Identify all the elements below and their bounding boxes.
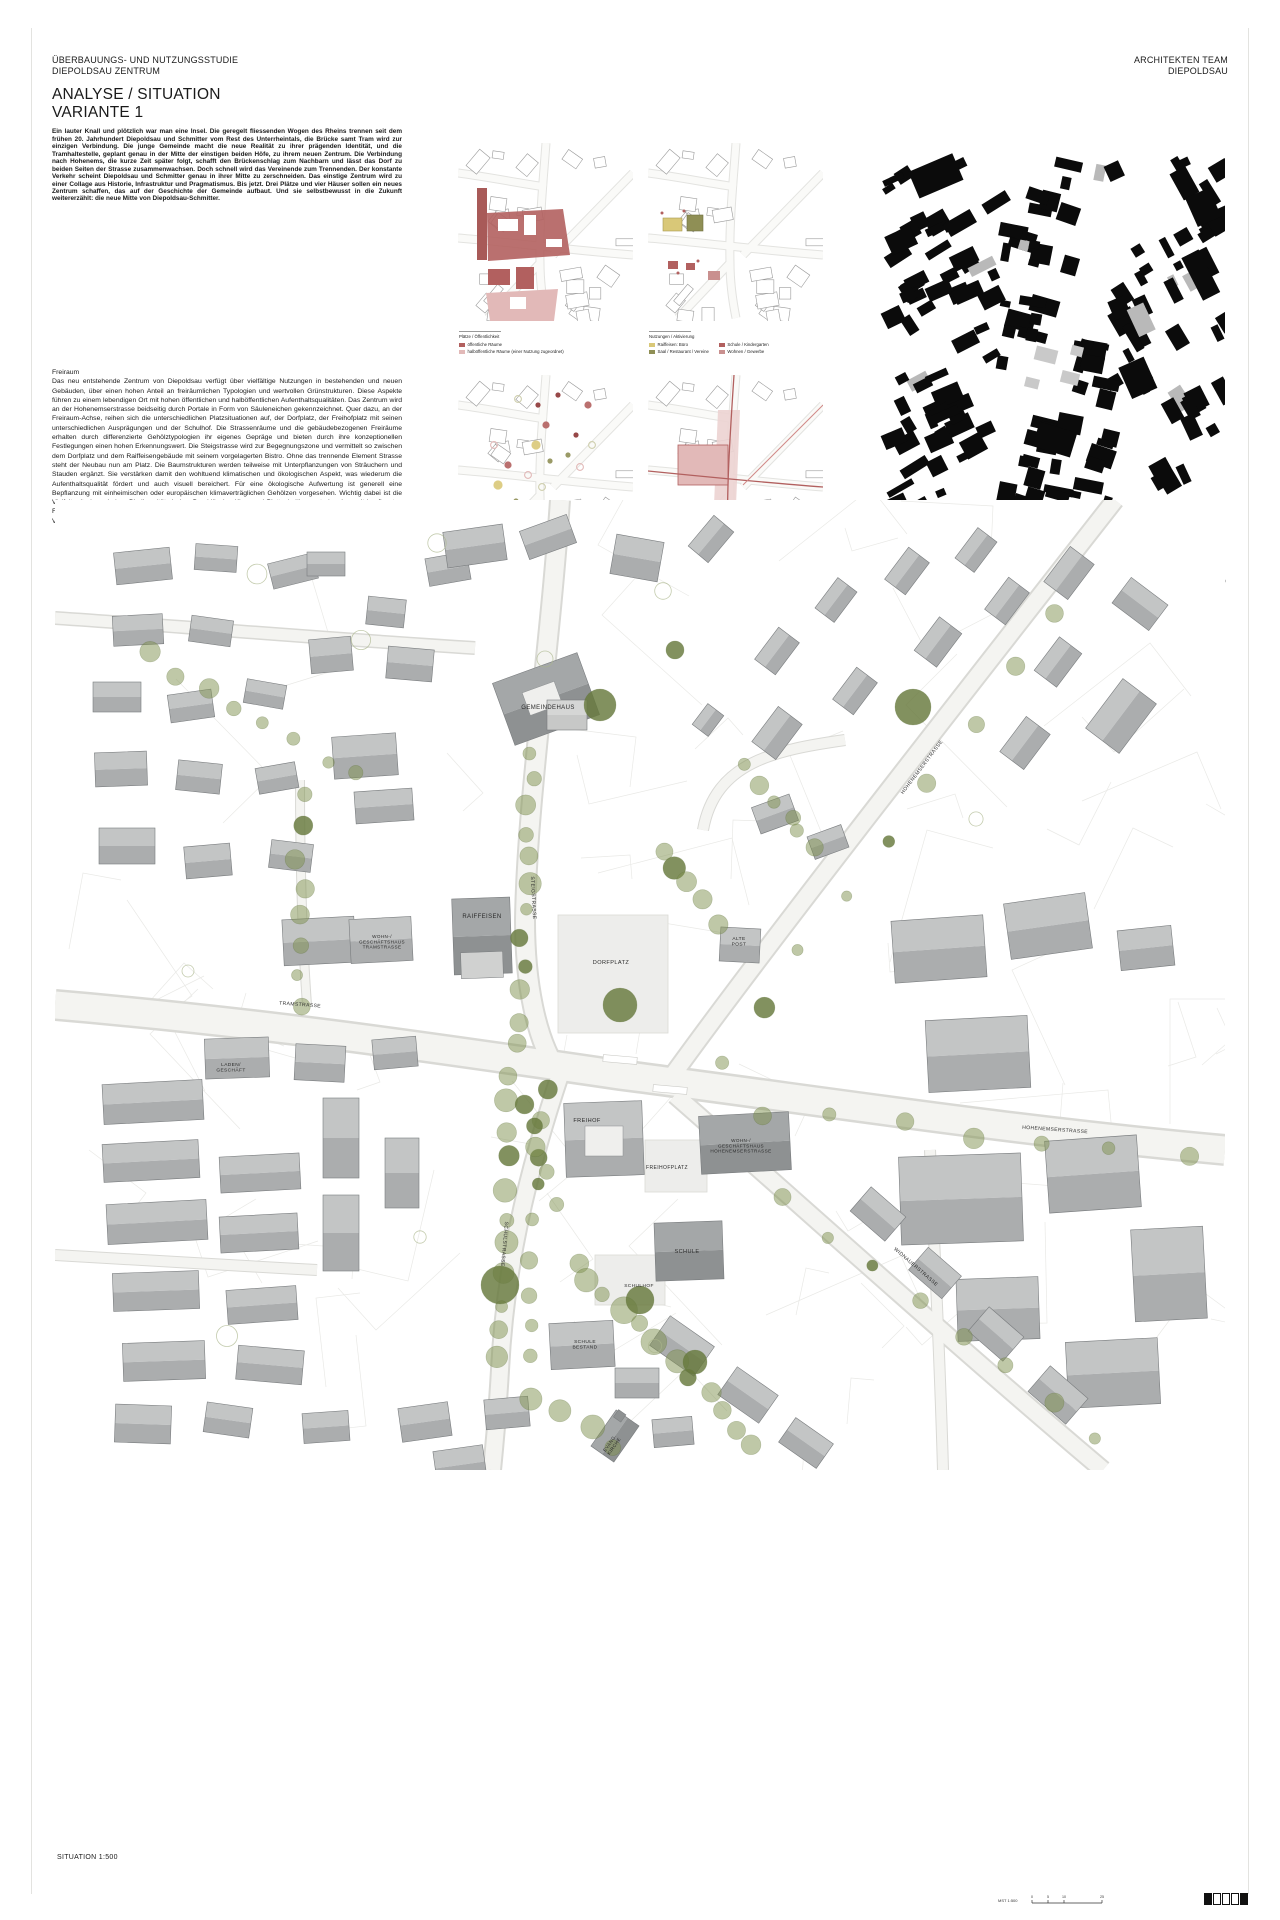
- scale-tick-label: 5: [1047, 1895, 1049, 1899]
- sheet-title-line2: VARIANTE 1: [52, 104, 221, 122]
- legend-item-label: Schule / Kindergarten: [727, 342, 768, 348]
- legend-nutzungen: Nutzungen / AktivierungRaiffeisen: BüroS…: [649, 331, 769, 355]
- legend-title: Nutzungen / Aktivierung: [649, 331, 691, 340]
- scale-tick-label: 25: [1100, 1895, 1104, 1899]
- analysis-board: { "header": { "left1": "ÜBERBAUUNGS- UND…: [0, 0, 1280, 1920]
- legend-item: Wohnen / Gewerbe: [719, 349, 769, 355]
- project-header: ÜBERBAUUNGS- UND NUTZUNGSSTUDIE DIEPOLDS…: [52, 55, 238, 77]
- logo-mark: [1203, 1893, 1248, 1905]
- scale-tick-label: 10: [1062, 1895, 1066, 1899]
- mini-map-nutzungen: [648, 143, 823, 321]
- legend-item: Raiffeisen: Büro: [649, 342, 709, 348]
- legend-title: Plätze / Öffentlichkeit: [459, 331, 501, 340]
- page-edge-left: [31, 28, 32, 1894]
- situation-scale-label: SITUATION 1:500: [57, 1854, 118, 1861]
- legend-plaetze: Plätze / Öffentlichkeitöffentliche Räume…: [459, 331, 564, 355]
- legend-swatch-icon: [459, 350, 465, 354]
- scale-bar: MST 1:500051025: [998, 1892, 1108, 1906]
- project-title-line2: DIEPOLDSAU ZENTRUM: [52, 66, 238, 77]
- legend-item-label: Saal / Restaurant / Vereine: [658, 349, 709, 355]
- page-edge-right: [1248, 28, 1249, 1894]
- freiraum-heading: Freiraum: [52, 368, 402, 377]
- legend-item-label: öffentliche Räume: [468, 342, 503, 348]
- legend-swatch-icon: [719, 350, 725, 354]
- legend-item-label: Raiffeisen: Büro: [658, 342, 689, 348]
- author-header: ARCHITEKTEN TEAM DIEPOLDSAU: [1134, 55, 1228, 77]
- legend-item: öffentliche Räume: [459, 342, 564, 348]
- plan-label-freihofplatz: FREIHOFPLATZ: [646, 1165, 688, 1171]
- site-plan: GEMEINDEHAUSRAIFFEISENWOHN-/GESCHÄFTSHAU…: [55, 500, 1225, 1470]
- legend-swatch-icon: [459, 343, 465, 347]
- plan-label-freihof: FREIHOF: [573, 1118, 601, 1124]
- author-line2: DIEPOLDSAU: [1134, 66, 1228, 77]
- plan-label-schulhof: SCHULHOF: [624, 1283, 654, 1289]
- plan-label-gemeindehaus: GEMEINDEHAUS: [521, 705, 574, 711]
- plan-label-alte-post: ALTEPOST: [732, 936, 747, 948]
- legend-swatch-icon: [649, 350, 655, 354]
- plan-label-dorfplatz: DORFPLATZ: [593, 960, 630, 966]
- legend-swatch-icon: [719, 343, 725, 347]
- legend-item: Schule / Kindergarten: [719, 342, 769, 348]
- scale-bar-graphic: MST 1:500051025: [998, 1892, 1108, 1906]
- legend-item: Saal / Restaurant / Vereine: [649, 349, 709, 355]
- sheet-title-line1: ANALYSE / SITUATION: [52, 86, 221, 104]
- scale-bar-prefix: MST 1:500: [998, 1898, 1018, 1903]
- project-title-line1: ÜBERBAUUNGS- UND NUTZUNGSSTUDIE: [52, 55, 238, 66]
- plan-label-schule-bestand: SCHULEBESTAND: [572, 1339, 597, 1351]
- author-line1: ARCHITEKTEN TEAM: [1134, 55, 1228, 66]
- legend-swatch-icon: [649, 343, 655, 347]
- legend-item-label: Wohnen / Gewerbe: [727, 349, 764, 355]
- scale-tick-label: 0: [1031, 1895, 1033, 1899]
- sheet-title: ANALYSE / SITUATION VARIANTE 1: [52, 86, 221, 121]
- legend-item-label: halböffentliche Räume (einer Nutzung zug…: [468, 349, 564, 355]
- mini-map-plaetze: [458, 143, 633, 321]
- intro-paragraph: Ein lauter Knall und plötzlich war man e…: [52, 128, 402, 203]
- legend-item: halböffentliche Räume (einer Nutzung zug…: [459, 349, 564, 355]
- plan-label-schule: SCHULE: [674, 1249, 699, 1255]
- plan-label-raiffeisen: RAIFFEISEN: [462, 914, 501, 920]
